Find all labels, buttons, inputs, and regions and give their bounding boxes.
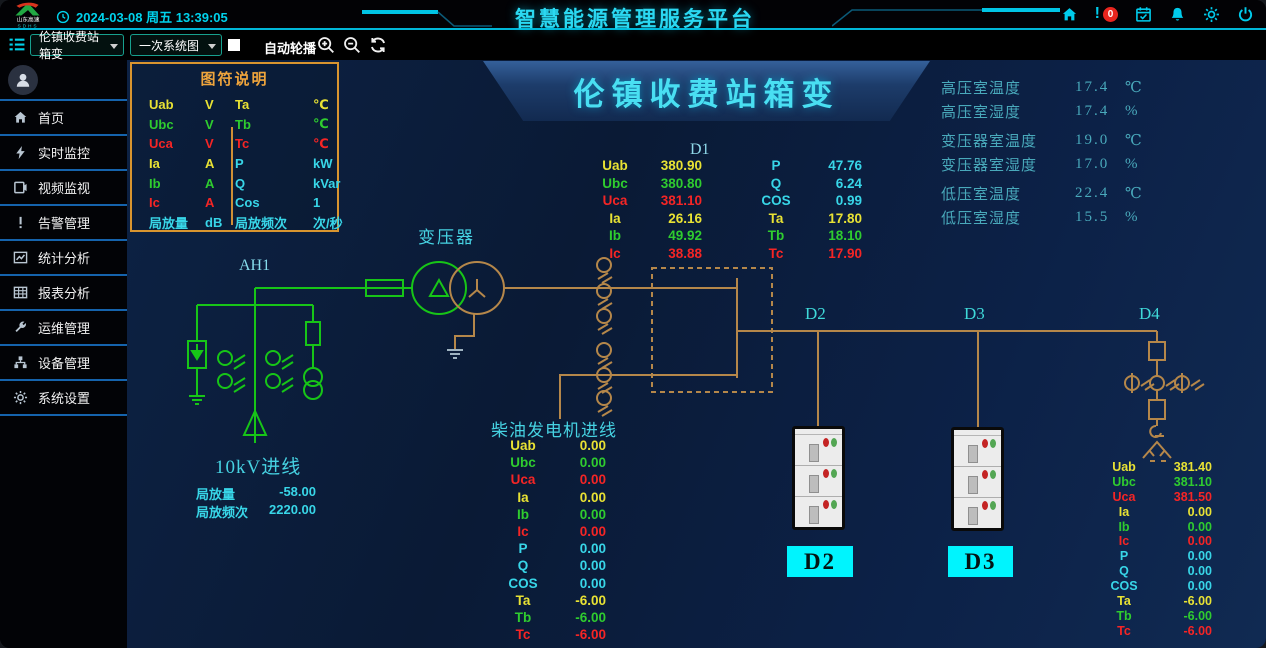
legend-unit: kW — [313, 156, 355, 171]
line-chart-icon — [13, 250, 28, 265]
telemetry-label: COS — [498, 576, 548, 593]
telemetry-label: Ia — [1102, 505, 1146, 520]
telemetry-label: Ubc — [1102, 475, 1146, 490]
env-row: 低压室湿度15.5% — [941, 205, 1142, 229]
telemetry-value: -6.00 — [548, 627, 606, 644]
env-label: 变压器室温度 — [941, 130, 1075, 151]
transformer-label: 变压器 — [418, 223, 475, 248]
diesel-telemetry-row: Ubc0.00 — [498, 455, 606, 472]
telemetry-label: Ic — [1102, 534, 1146, 549]
env-unit: ℃ — [1125, 131, 1142, 150]
telemetry-label: COS — [1102, 579, 1146, 594]
telemetry-label: Ia — [592, 211, 638, 229]
header-actions: ! 0 — [1061, 5, 1254, 23]
home-icon — [13, 110, 28, 125]
telemetry-label: Uca — [592, 193, 638, 211]
diesel-telemetry-row: P0.00 — [498, 541, 606, 558]
telemetry-label: Ib — [592, 228, 638, 246]
telemetry-label: Ubc — [592, 176, 638, 194]
telemetry-label: Ib — [498, 507, 548, 524]
env-label: 低压室温度 — [941, 183, 1075, 204]
telemetry-label: Uab — [1102, 460, 1146, 475]
view-controls — [317, 36, 387, 54]
d4-telemetry-row: Tc-6.00 — [1102, 624, 1212, 639]
d1-telemetry-right: P47.76Q6.24COS0.99Ta17.80Tb18.10Tc17.90 — [750, 158, 862, 264]
telemetry-value: 381.10 — [1146, 475, 1212, 490]
legend-unit: ℃ — [313, 136, 355, 152]
diesel-telemetry: Uab0.00Ubc0.00Uca0.00Ia0.00Ib0.00Ic0.00P… — [498, 438, 606, 644]
home-icon[interactable] — [1061, 6, 1078, 23]
alert-icon — [13, 215, 28, 230]
table-icon — [13, 285, 28, 300]
telemetry-value: 381.50 — [1146, 490, 1212, 505]
alarm-indicator[interactable]: ! 0 — [1095, 5, 1118, 23]
exclamation-icon: ! — [1095, 5, 1100, 23]
telemetry-value: 0.00 — [548, 490, 606, 507]
gear-icon[interactable] — [1203, 6, 1220, 23]
wrench-icon — [13, 320, 28, 335]
sidebar-item-label: 报表分析 — [38, 283, 90, 302]
sidebar-item-系统设置[interactable]: 系统设置 — [0, 381, 127, 416]
diesel-telemetry-row: Ib0.00 — [498, 507, 606, 524]
legend-signal: Ubc — [149, 117, 205, 132]
feeder-d4-label: D4 — [1139, 304, 1160, 324]
env-row: 变压器室温度19.0℃ — [941, 128, 1142, 152]
env-value: 19.0 — [1075, 132, 1125, 149]
sidebar-item-实时监控[interactable]: 实时监控 — [0, 136, 127, 171]
alarm-badge: 0 — [1103, 7, 1118, 22]
sidebar-item-报表分析[interactable]: 报表分析 — [0, 276, 127, 311]
telemetry-label: Ic — [592, 246, 638, 264]
telemetry-label: Tb — [750, 228, 802, 246]
telemetry-label: P — [498, 541, 548, 558]
env-value: 22.4 — [1075, 185, 1125, 202]
view-dropdown[interactable]: 一次系统图 — [130, 34, 222, 56]
legend-unit: ℃ — [313, 97, 355, 113]
telemetry-label: Uab — [592, 158, 638, 176]
d4-telemetry-row: Ubc381.10 — [1102, 475, 1212, 490]
sidebar-item-label: 视频监视 — [38, 178, 90, 197]
telemetry-value: 0.00 — [1146, 564, 1212, 579]
pd-value: 2220.00 — [262, 502, 316, 520]
cabinet-d2[interactable] — [792, 426, 845, 530]
d1-telemetry-row: Uca381.10 — [592, 193, 702, 211]
telemetry-value: 0.00 — [1146, 505, 1212, 520]
d4-telemetry-row: Ia0.00 — [1102, 505, 1212, 520]
diesel-telemetry-row: Ia0.00 — [498, 490, 606, 507]
zoom-in-icon[interactable] — [317, 36, 335, 54]
telemetry-label: Tc — [1102, 624, 1146, 639]
telemetry-value: 0.00 — [548, 472, 606, 489]
env-label: 低压室湿度 — [941, 207, 1075, 228]
diesel-telemetry-row: COS0.00 — [498, 576, 606, 593]
avatar[interactable] — [8, 65, 38, 95]
telemetry-value: 380.90 — [638, 158, 702, 176]
refresh-icon[interactable] — [369, 36, 387, 54]
gear-icon — [13, 390, 28, 405]
env-value: 17.4 — [1075, 79, 1125, 96]
power-icon[interactable] — [1237, 6, 1254, 23]
telemetry-label: Uca — [498, 472, 548, 489]
legend-signal: Uca — [149, 136, 205, 151]
station-dropdown[interactable]: 伦镇收费站箱变 — [30, 34, 124, 56]
telemetry-value: 47.76 — [802, 158, 862, 176]
telemetry-value: 381.40 — [1146, 460, 1212, 475]
diesel-telemetry-row: Uab0.00 — [498, 438, 606, 455]
header-decoration-right — [832, 2, 1067, 27]
d3-nameplate[interactable]: D3 — [948, 546, 1013, 577]
sidebar-item-设备管理[interactable]: 设备管理 — [0, 346, 127, 381]
telemetry-value: -6.00 — [548, 593, 606, 610]
platform-title: 智慧能源管理服务平台 — [440, 3, 830, 33]
telemetry-value: 0.00 — [1146, 579, 1212, 594]
legend-signal: Ta — [235, 97, 313, 112]
telemetry-label: Tc — [498, 627, 548, 644]
telemetry-value: 49.92 — [638, 228, 702, 246]
menu-list-icon[interactable] — [7, 36, 27, 53]
pd-label: 局放量 — [196, 484, 262, 502]
env-value: 15.5 — [1075, 209, 1125, 226]
sidebar-item-label: 首页 — [38, 108, 64, 127]
telemetry-value: -6.00 — [548, 610, 606, 627]
telemetry-value: 381.10 — [638, 193, 702, 211]
telemetry-label: Ia — [498, 490, 548, 507]
telemetry-label: Uca — [1102, 490, 1146, 505]
telemetry-value: 0.99 — [802, 193, 862, 211]
d1-telemetry-row: Tc17.90 — [750, 246, 862, 264]
telemetry-label: Uab — [498, 438, 548, 455]
clock-icon — [56, 10, 70, 24]
d4-telemetry: Uab381.40Ubc381.10Uca381.50Ia0.00Ib0.00I… — [1102, 460, 1212, 639]
pd-row: 局放量-58.00 — [196, 484, 316, 502]
telemetry-value: -6.00 — [1146, 594, 1212, 609]
sidebar-item-label: 告警管理 — [38, 213, 90, 232]
diesel-telemetry-row: Uca0.00 — [498, 472, 606, 489]
legend-signal: Cos — [235, 195, 313, 210]
sidebar-item-label: 系统设置 — [38, 388, 90, 407]
legend-panel: 图符说明 UabVTa℃UbcVTb℃UcaVTc℃IaAPkWIbAQkVar… — [130, 62, 339, 232]
datetime-text: 2024-03-08 周五 13:39:05 — [76, 7, 228, 26]
legend-title: 图符说明 — [132, 68, 337, 89]
d4-telemetry-row: Ib0.00 — [1102, 520, 1212, 535]
telemetry-value: 0.00 — [1146, 534, 1212, 549]
header-bar: 山东高速 SDHS 2024-03-08 周五 13:39:05 智慧能源管理服… — [0, 0, 1266, 30]
app-window: 山东高速 SDHS 2024-03-08 周五 13:39:05 智慧能源管理服… — [0, 0, 1266, 648]
legend-signal: 局放频次 — [235, 213, 313, 232]
env-unit: % — [1125, 209, 1138, 226]
telemetry-label: Tb — [498, 610, 548, 627]
sidebar-item-统计分析[interactable]: 统计分析 — [0, 241, 127, 276]
sidebar-item-label: 运维管理 — [38, 318, 90, 337]
legend-unit: ℃ — [313, 116, 355, 132]
legend-signal: Ib — [149, 176, 205, 191]
legend-unit: V — [205, 97, 235, 112]
pd-label: 局放频次 — [196, 502, 262, 520]
diesel-telemetry-row: Tb-6.00 — [498, 610, 606, 627]
feeder-ah1-label: AH1 — [239, 257, 270, 275]
telemetry-label: Ta — [498, 593, 548, 610]
logo-text-cn: 山东高速 — [16, 15, 39, 23]
legend-divider — [231, 127, 233, 225]
d1-telemetry-row: Ta17.80 — [750, 211, 862, 229]
env-label: 高压室湿度 — [941, 101, 1075, 122]
telemetry-label: P — [1102, 549, 1146, 564]
legend-unit: 次/秒 — [313, 213, 355, 232]
telemetry-value: 18.10 — [802, 228, 862, 246]
telemetry-label: Q — [1102, 564, 1146, 579]
person-icon — [14, 71, 32, 89]
env-row: 高压室湿度17.4% — [941, 99, 1142, 123]
sidebar-item-运维管理[interactable]: 运维管理 — [0, 311, 127, 346]
logo-text-en: SDHS — [17, 24, 38, 28]
telemetry-value: -6.00 — [1146, 609, 1212, 624]
devices-icon — [13, 355, 28, 370]
d4-telemetry-row: P0.00 — [1102, 549, 1212, 564]
env-row: 低压室温度22.4℃ — [941, 181, 1142, 205]
partial-discharge-readings: 局放量-58.00局放频次2220.00 — [196, 484, 316, 520]
auto-rotate-label: 自动轮播 — [264, 38, 316, 57]
legend-signal: Tb — [235, 117, 313, 132]
feeder-d2-label: D2 — [805, 304, 826, 324]
telemetry-value: 0.00 — [548, 576, 606, 593]
legend-signal: Ia — [149, 156, 205, 171]
legend-signal: P — [235, 156, 313, 171]
telemetry-value: -6.00 — [1146, 624, 1212, 639]
lightning-icon — [13, 145, 28, 160]
sidebar-user-section — [0, 60, 127, 101]
telemetry-label: P — [750, 158, 802, 176]
station-dropdown-value: 伦镇收费站箱变 — [39, 28, 107, 62]
cabinet-d3[interactable] — [951, 427, 1004, 531]
environment-panel: 高压室温度17.4℃高压室湿度17.4%变压器室温度19.0℃变压器室湿度17.… — [941, 75, 1142, 229]
d4-telemetry-row: Uab381.40 — [1102, 460, 1212, 475]
telemetry-value: 0.00 — [548, 524, 606, 541]
telemetry-value: 17.80 — [802, 211, 862, 229]
sidebar-item-视频监视[interactable]: 视频监视 — [0, 171, 127, 206]
env-unit: % — [1125, 156, 1138, 173]
toolbar: 伦镇收费站箱变 一次系统图 自动轮播 — [0, 30, 1266, 60]
d4-telemetry-row: Q0.00 — [1102, 564, 1212, 579]
legend-unit: kVar — [313, 176, 355, 191]
telemetry-label: Q — [750, 176, 802, 194]
sidebar-menu: 首页实时监控视频监视告警管理统计分析报表分析运维管理设备管理系统设置 — [0, 101, 127, 416]
d1-telemetry-row: P47.76 — [750, 158, 862, 176]
telemetry-label: Ic — [498, 524, 548, 541]
view-dropdown-value: 一次系统图 — [139, 37, 199, 54]
legend-signal: Uab — [149, 97, 205, 112]
feeder-d3-label: D3 — [964, 304, 985, 324]
d1-telemetry-row: Tb18.10 — [750, 228, 862, 246]
telemetry-label: Ubc — [498, 455, 548, 472]
telemetry-value: 0.00 — [548, 507, 606, 524]
telemetry-value: 17.90 — [802, 246, 862, 264]
diesel-telemetry-row: Ta-6.00 — [498, 593, 606, 610]
telemetry-value: 6.24 — [802, 176, 862, 194]
telemetry-label: Tc — [750, 246, 802, 264]
sidebar-item-label: 实时监控 — [38, 143, 90, 162]
station-banner: 伦镇收费站箱变 — [483, 61, 930, 121]
telemetry-label: Tb — [1102, 609, 1146, 624]
calendar-icon[interactable] — [1135, 6, 1152, 23]
telemetry-label: Ib — [1102, 520, 1146, 535]
env-unit: ℃ — [1125, 184, 1142, 203]
telemetry-value: 0.00 — [1146, 549, 1212, 564]
feeder-d1-label: D1 — [690, 141, 710, 159]
telemetry-value: 0.00 — [548, 541, 606, 558]
legend-grid: UabVTa℃UbcVTb℃UcaVTc℃IaAPkWIbAQkVarIcACo… — [149, 95, 355, 232]
telemetry-value: 0.00 — [548, 558, 606, 575]
telemetry-label: Ta — [1102, 594, 1146, 609]
legend-signal: Tc — [235, 136, 313, 151]
datetime-display: 2024-03-08 周五 13:39:05 — [56, 7, 228, 26]
diesel-telemetry-row: Q0.00 — [498, 558, 606, 575]
env-value: 17.0 — [1075, 156, 1125, 173]
legend-signal: 局放量 — [149, 213, 205, 232]
zoom-out-icon[interactable] — [343, 36, 361, 54]
telemetry-label: Ta — [750, 211, 802, 229]
env-unit: ℃ — [1125, 78, 1142, 97]
telemetry-label: Q — [498, 558, 548, 575]
telemetry-value: 0.00 — [548, 455, 606, 472]
video-icon — [13, 180, 28, 195]
sidebar-item-首页[interactable]: 首页 — [0, 101, 127, 136]
d1-telemetry-row: Ia26.16 — [592, 211, 702, 229]
d1-telemetry-row: Ubc380.80 — [592, 176, 702, 194]
d4-telemetry-row: Ta-6.00 — [1102, 594, 1212, 609]
d1-telemetry-row: Uab380.90 — [592, 158, 702, 176]
legend-signal: Q — [235, 176, 313, 191]
station-banner-title: 伦镇收费站箱变 — [574, 69, 840, 114]
company-logo: 山东高速 SDHS — [6, 1, 50, 33]
legend-unit: 1 — [313, 195, 355, 210]
telemetry-label: COS — [750, 193, 802, 211]
telemetry-value: 0.00 — [548, 438, 606, 455]
d4-telemetry-row: Tb-6.00 — [1102, 609, 1212, 624]
env-unit: % — [1125, 103, 1138, 120]
diesel-telemetry-row: Ic0.00 — [498, 524, 606, 541]
telemetry-value: 380.80 — [638, 176, 702, 194]
incoming-line-label: 10kV进线 — [215, 452, 301, 479]
d2-nameplate[interactable]: D2 — [787, 546, 853, 577]
d4-telemetry-row: COS0.00 — [1102, 579, 1212, 594]
env-row: 变压器室湿度17.0% — [941, 152, 1142, 176]
auto-rotate-checkbox[interactable] — [228, 39, 240, 51]
sidebar-item-label: 统计分析 — [38, 248, 90, 267]
env-value: 17.4 — [1075, 103, 1125, 120]
d1-telemetry-row: Q6.24 — [750, 176, 862, 194]
telemetry-value: 26.16 — [638, 211, 702, 229]
env-label: 高压室温度 — [941, 77, 1075, 98]
legend-signal: Ic — [149, 195, 205, 210]
diesel-telemetry-row: Tc-6.00 — [498, 627, 606, 644]
d1-telemetry-row: COS0.99 — [750, 193, 862, 211]
telemetry-value: 38.88 — [638, 246, 702, 264]
d1-telemetry-row: Ib49.92 — [592, 228, 702, 246]
env-row: 高压室温度17.4℃ — [941, 75, 1142, 99]
d1-telemetry-left: Uab380.90Ubc380.80Uca381.10Ia26.16Ib49.9… — [592, 158, 702, 264]
sidebar-item-告警管理[interactable]: 告警管理 — [0, 206, 127, 241]
env-label: 变压器室湿度 — [941, 154, 1075, 175]
pd-row: 局放频次2220.00 — [196, 502, 316, 520]
d1-telemetry-row: Ic38.88 — [592, 246, 702, 264]
d4-telemetry-row: Uca381.50 — [1102, 490, 1212, 505]
pd-value: -58.00 — [262, 484, 316, 502]
sidebar-item-label: 设备管理 — [38, 353, 90, 372]
bell-icon[interactable] — [1169, 6, 1186, 23]
d4-telemetry-row: Ic0.00 — [1102, 534, 1212, 549]
telemetry-value: 0.00 — [1146, 520, 1212, 535]
sidebar: 首页实时监控视频监视告警管理统计分析报表分析运维管理设备管理系统设置 — [0, 60, 127, 648]
